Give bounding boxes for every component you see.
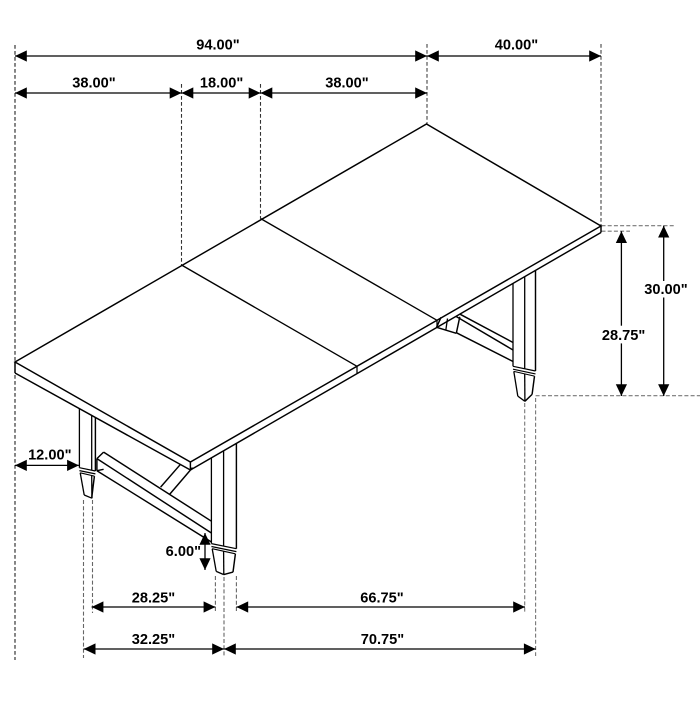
svg-text:6.00": 6.00" (166, 544, 201, 560)
svg-text:38.00": 38.00" (325, 75, 368, 91)
svg-text:18.00": 18.00" (200, 75, 243, 91)
svg-text:28.75": 28.75" (602, 328, 645, 344)
svg-text:32.25": 32.25" (132, 632, 175, 648)
svg-text:94.00": 94.00" (196, 37, 239, 53)
svg-text:30.00": 30.00" (644, 282, 687, 298)
svg-text:28.25": 28.25" (132, 590, 175, 606)
svg-text:66.75": 66.75" (360, 590, 403, 606)
svg-text:38.00": 38.00" (72, 75, 115, 91)
svg-text:12.00": 12.00" (28, 448, 71, 464)
svg-text:70.75": 70.75" (361, 632, 404, 648)
svg-text:40.00": 40.00" (495, 37, 538, 53)
